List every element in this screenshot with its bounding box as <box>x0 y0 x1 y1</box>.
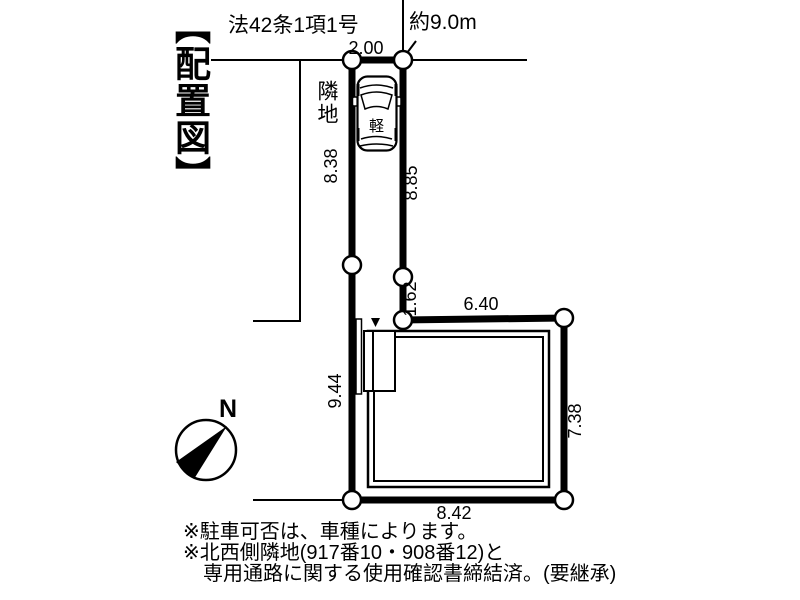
dim-strip-right: 8.85 <box>401 165 421 200</box>
neighbor-land-label: 隣地 <box>311 80 341 126</box>
neighbor-boundary-lines <box>253 60 352 500</box>
road-width-label: 約9.0m <box>409 11 477 34</box>
entrance-porch <box>364 331 395 391</box>
dim-main-bottom: 8.42 <box>436 503 471 523</box>
entrance-arrow-icon <box>371 318 380 327</box>
approach-step <box>356 319 362 394</box>
neighbor-boundary-west <box>253 60 300 321</box>
note-parking: ※駐車可否は、車種によります。 <box>183 522 477 543</box>
car-type-label: 軽 <box>369 118 384 135</box>
car-icon: 軽 <box>353 77 402 151</box>
note-neighbor-agreement-1: ※北西側隣地(917番10・908番12)と <box>183 543 504 564</box>
site-plan-drawing: 軽 N 法42条1項1号 約9.0m 2.00 8.38 8.85 1.62 6… <box>0 0 800 600</box>
note-neighbor-agreement-2: 専用通路に関する使用確認書締結済。(要継承) <box>203 564 616 585</box>
road-law-label: 法42条1項1号 <box>228 14 359 37</box>
page-title: 【配置図】 <box>164 8 216 193</box>
dim-main-right: 7.38 <box>565 403 585 438</box>
dim-strip-top-width: 2.00 <box>348 38 383 58</box>
north-compass: N <box>176 395 237 480</box>
building-inner-wall <box>374 337 543 481</box>
north-label: N <box>219 395 237 423</box>
dim-main-left: 9.44 <box>325 373 345 408</box>
dim-strip-left-upper: 8.38 <box>321 148 341 183</box>
building-outline <box>364 331 549 487</box>
dim-main-top: 6.40 <box>463 294 498 314</box>
site-plan-page: 【配置図】 隣地 <box>0 0 800 600</box>
dim-strip-right-step: 1.62 <box>400 281 420 316</box>
